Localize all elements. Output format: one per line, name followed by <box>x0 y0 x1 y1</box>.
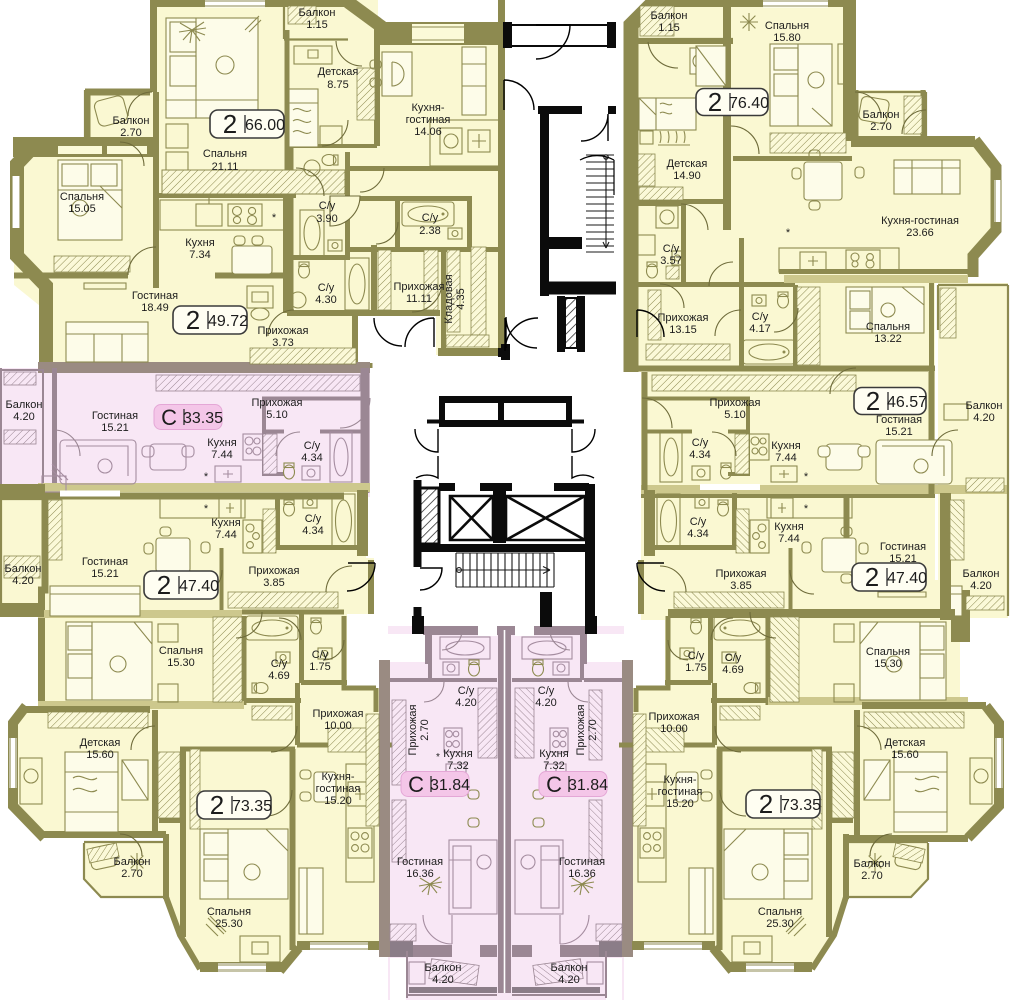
svg-text:Прихожая: Прихожая <box>258 325 309 337</box>
svg-text:Гостиная: Гостиная <box>132 290 178 302</box>
svg-text:2.38: 2.38 <box>419 225 440 237</box>
svg-text:5.10: 5.10 <box>266 409 287 421</box>
svg-text:2.70: 2.70 <box>587 719 599 740</box>
svg-text:Прихожая: Прихожая <box>394 281 445 293</box>
svg-text:2.70: 2.70 <box>120 127 141 139</box>
svg-text:4.34: 4.34 <box>301 452 322 464</box>
svg-text:3.85: 3.85 <box>730 580 751 592</box>
svg-text:31.84: 31.84 <box>430 777 470 794</box>
svg-text:2: 2 <box>708 87 722 117</box>
svg-text:2: 2 <box>759 789 773 819</box>
svg-text:Балкон: Балкон <box>6 399 43 411</box>
svg-text:*: * <box>436 752 440 763</box>
svg-text:С/у: С/у <box>305 513 322 525</box>
svg-text:2: 2 <box>210 790 224 820</box>
svg-text:Прихожая: Прихожая <box>252 397 303 409</box>
svg-text:15.60: 15.60 <box>86 749 114 761</box>
svg-text:Кухня: Кухня <box>771 440 800 452</box>
svg-text:4.34: 4.34 <box>687 528 708 540</box>
svg-text:Детская: Детская <box>885 737 926 749</box>
svg-text:15.20: 15.20 <box>666 798 694 810</box>
svg-text:Прихожая: Прихожая <box>313 708 364 720</box>
svg-text:гостиная: гостиная <box>658 786 703 798</box>
svg-text:8.75: 8.75 <box>327 79 348 91</box>
svg-text:Балкон: Балкон <box>966 400 1003 412</box>
svg-text:Спальня: Спальня <box>866 321 910 333</box>
svg-text:Детская: Детская <box>667 158 708 170</box>
svg-text:10.00: 10.00 <box>660 723 688 735</box>
svg-text:Прихожая: Прихожая <box>710 397 761 409</box>
svg-text:4.17: 4.17 <box>749 323 770 335</box>
svg-text:1.15: 1.15 <box>306 19 327 31</box>
svg-text:3.90: 3.90 <box>316 213 337 225</box>
svg-text:13.15: 13.15 <box>669 324 697 336</box>
svg-text:Спальня: Спальня <box>758 906 802 918</box>
svg-text:4.20: 4.20 <box>13 411 34 423</box>
svg-text:76.40: 76.40 <box>729 95 769 112</box>
svg-text:25.30: 25.30 <box>766 918 794 930</box>
svg-text:4.20: 4.20 <box>12 575 33 587</box>
svg-text:Гостиная: Гостиная <box>397 856 443 868</box>
svg-text:4.20: 4.20 <box>432 974 453 986</box>
svg-text:25.30: 25.30 <box>215 918 243 930</box>
svg-text:*: * <box>204 503 209 515</box>
svg-text:4.20: 4.20 <box>535 697 556 709</box>
svg-text:*: * <box>786 227 791 239</box>
svg-text:15.80: 15.80 <box>773 32 801 44</box>
svg-text:11.11: 11.11 <box>406 293 432 305</box>
svg-text:7.34: 7.34 <box>189 249 210 261</box>
svg-text:Кухня-: Кухня- <box>411 102 444 114</box>
svg-text:2.70: 2.70 <box>861 870 882 882</box>
svg-text:Прихожая: Прихожая <box>407 704 419 755</box>
svg-text:4.69: 4.69 <box>722 664 743 676</box>
svg-text:С/у: С/у <box>304 440 321 452</box>
svg-text:Кухня: Кухня <box>185 237 214 249</box>
svg-text:С: С <box>408 772 424 797</box>
svg-text:Гостиная: Гостиная <box>880 541 926 553</box>
svg-text:С: С <box>161 405 177 430</box>
svg-text:Детская: Детская <box>318 66 359 78</box>
svg-text:С/у: С/у <box>458 685 475 697</box>
svg-text:Прихожая: Прихожая <box>658 312 709 324</box>
svg-text:Гостиная: Гостиная <box>876 414 922 426</box>
svg-text:15.30: 15.30 <box>874 658 902 670</box>
svg-text:4.34: 4.34 <box>689 449 710 461</box>
svg-text:С/у: С/у <box>690 516 707 528</box>
svg-text:Прихожая: Прихожая <box>249 565 300 577</box>
svg-text:14.06: 14.06 <box>414 126 442 138</box>
svg-text:С/у: С/у <box>663 243 680 255</box>
svg-text:Гостиная: Гостиная <box>82 556 128 568</box>
svg-text:7.32: 7.32 <box>543 760 564 772</box>
svg-text:66.00: 66.00 <box>245 117 285 134</box>
svg-text:5.10: 5.10 <box>724 409 745 421</box>
svg-text:4.20: 4.20 <box>455 697 476 709</box>
svg-text:15.05: 15.05 <box>68 203 96 215</box>
svg-text:Спальня: Спальня <box>159 645 203 657</box>
svg-text:Кухня-гостиная: Кухня-гостиная <box>881 215 959 227</box>
svg-text:73.35: 73.35 <box>232 798 272 815</box>
svg-text:21.11: 21.11 <box>212 161 239 173</box>
svg-text:16.36: 16.36 <box>406 868 434 880</box>
svg-text:С/у: С/у <box>692 437 709 449</box>
svg-text:23.66: 23.66 <box>906 227 934 239</box>
svg-text:15.21: 15.21 <box>101 422 129 434</box>
svg-text:33.35: 33.35 <box>183 410 223 427</box>
svg-text:Спальня: Спальня <box>866 646 910 658</box>
svg-text:С/у: С/у <box>752 311 769 323</box>
svg-text:С/у: С/у <box>319 200 336 212</box>
svg-text:гостиная: гостиная <box>406 114 451 126</box>
svg-text:4.20: 4.20 <box>970 580 991 592</box>
svg-text:2.70: 2.70 <box>870 121 891 133</box>
svg-text:2: 2 <box>223 109 237 139</box>
svg-text:3.57: 3.57 <box>660 255 681 267</box>
svg-text:4.34: 4.34 <box>302 525 323 537</box>
svg-text:Балкон: Балкон <box>425 962 462 974</box>
svg-text:7.44: 7.44 <box>211 449 232 461</box>
svg-text:Кухня-: Кухня- <box>663 774 696 786</box>
svg-text:10.00: 10.00 <box>324 720 352 732</box>
svg-text:7.44: 7.44 <box>215 529 236 541</box>
svg-text:47.40: 47.40 <box>887 570 927 587</box>
svg-text:Спальня: Спальня <box>60 191 104 203</box>
svg-text:Прихожая: Прихожая <box>575 704 587 755</box>
svg-text:18.49: 18.49 <box>141 302 169 314</box>
svg-text:Гостиная: Гостиная <box>559 856 605 868</box>
svg-text:Кухня: Кухня <box>211 517 240 529</box>
svg-text:Прихожая: Прихожая <box>716 568 767 580</box>
svg-text:С/у: С/у <box>312 649 329 661</box>
svg-text:С/у: С/у <box>725 652 742 664</box>
svg-text:С: С <box>546 772 562 797</box>
svg-text:2: 2 <box>157 570 171 600</box>
svg-text:47.40: 47.40 <box>179 578 219 595</box>
svg-text:Гостиная: Гостиная <box>92 410 138 422</box>
svg-text:4.20: 4.20 <box>558 974 579 986</box>
svg-text:Детская: Детская <box>80 737 121 749</box>
svg-text:гостиная: гостиная <box>316 783 361 795</box>
svg-text:Спальня: Спальня <box>765 20 809 32</box>
svg-text:Балкон: Балкон <box>963 568 1000 580</box>
svg-text:15.21: 15.21 <box>885 426 913 438</box>
svg-text:4.20: 4.20 <box>973 412 994 424</box>
svg-text:4.69: 4.69 <box>268 670 289 682</box>
svg-text:Спальня: Спальня <box>207 906 251 918</box>
svg-text:Балкон: Балкон <box>114 856 151 868</box>
svg-text:4.35: 4.35 <box>455 288 467 309</box>
svg-text:С/у: С/у <box>271 658 288 670</box>
svg-text:7.32: 7.32 <box>447 760 468 772</box>
svg-text:7.44: 7.44 <box>778 533 799 545</box>
svg-text:2: 2 <box>186 305 200 335</box>
svg-text:Балкон: Балкон <box>854 858 891 870</box>
svg-text:1.15: 1.15 <box>658 22 679 34</box>
svg-text:4.30: 4.30 <box>315 294 336 306</box>
svg-text:Спальня: Спальня <box>203 148 247 160</box>
svg-text:49.72: 49.72 <box>208 313 248 330</box>
svg-text:С/у: С/у <box>688 650 705 662</box>
svg-text:3.85: 3.85 <box>263 577 284 589</box>
svg-text:Кухня: Кухня <box>774 521 803 533</box>
svg-text:Балкон: Балкон <box>863 109 900 121</box>
svg-text:Балкон: Балкон <box>551 962 588 974</box>
svg-text:Балкон: Балкон <box>113 115 150 127</box>
svg-text:*: * <box>272 212 277 224</box>
svg-text:Балкон: Балкон <box>5 563 42 575</box>
svg-text:46.57: 46.57 <box>887 394 927 411</box>
svg-text:15.21: 15.21 <box>91 568 119 580</box>
svg-text:15.20: 15.20 <box>324 795 352 807</box>
svg-text:С/у: С/у <box>318 282 335 294</box>
svg-text:*: * <box>204 471 209 483</box>
svg-text:Кухня: Кухня <box>539 748 568 760</box>
svg-text:Кладовая: Кладовая <box>443 274 455 323</box>
svg-text:2.70: 2.70 <box>419 719 431 740</box>
svg-text:3.73: 3.73 <box>272 337 293 349</box>
svg-text:Прихожая: Прихожая <box>649 711 700 723</box>
svg-text:1.75: 1.75 <box>309 661 330 673</box>
svg-text:Кухня: Кухня <box>443 748 472 760</box>
svg-text:7.44: 7.44 <box>775 452 796 464</box>
svg-text:14.90: 14.90 <box>673 170 701 182</box>
svg-text:Кухня-: Кухня- <box>321 771 354 783</box>
svg-text:*: * <box>804 471 809 483</box>
svg-text:73.35: 73.35 <box>781 797 821 814</box>
svg-text:13.22: 13.22 <box>874 333 902 345</box>
svg-text:Балкон: Балкон <box>299 7 336 19</box>
svg-text:15.30: 15.30 <box>167 657 195 669</box>
svg-text:Балкон: Балкон <box>651 10 688 22</box>
svg-text:2: 2 <box>866 386 880 416</box>
svg-text:1.75: 1.75 <box>685 662 706 674</box>
svg-text:31.84: 31.84 <box>568 777 608 794</box>
svg-text:15.21: 15.21 <box>889 553 917 565</box>
svg-text:Кухня: Кухня <box>207 437 236 449</box>
svg-text:2: 2 <box>865 562 879 592</box>
svg-text:С/у: С/у <box>538 685 555 697</box>
svg-text:15.60: 15.60 <box>891 749 919 761</box>
svg-text:2.70: 2.70 <box>121 868 142 880</box>
svg-text:С/у: С/у <box>422 212 439 224</box>
svg-text:16.36: 16.36 <box>568 868 596 880</box>
